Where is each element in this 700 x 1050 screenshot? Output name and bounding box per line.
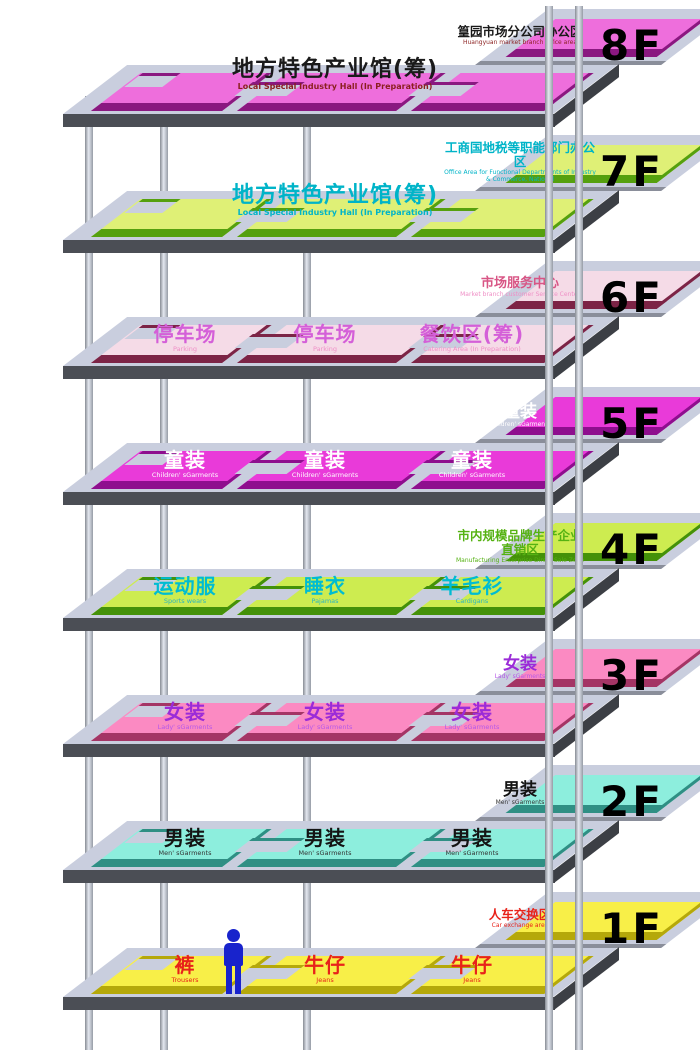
person-torso	[224, 943, 243, 966]
floor-number-5f: 5F	[600, 399, 696, 448]
zone-name-cn: 童装	[245, 449, 405, 471]
zone-name-en: Parking	[245, 345, 405, 353]
zone-name-cn: 童装	[392, 449, 552, 471]
floor-number-4f: 4F	[600, 525, 696, 574]
floor-number-3f: 3F	[600, 651, 696, 700]
zone-name-en: Men' sGarments	[245, 849, 405, 857]
zone-name-en: Children' sGarments	[245, 471, 405, 479]
floor-2f-slab-front	[63, 870, 555, 883]
zone-label: 童装 Children' sGarments	[105, 449, 265, 479]
zone-name-cn: 羊毛衫	[392, 575, 552, 597]
floor-number-7f: 7F	[600, 147, 696, 196]
zone-label: 女装 Lady' sGarments	[392, 701, 552, 731]
zone-name-cn: 停车场	[105, 323, 265, 345]
zone-label: 停车场 Parking	[245, 323, 405, 353]
floor-number-8f: 8F	[600, 21, 696, 70]
zone-name-en: Lady' sGarments	[245, 723, 405, 731]
zone-label: 停车场 Parking	[105, 323, 265, 353]
floor-7f-slab-front	[63, 240, 555, 253]
zone-name-en: Jeans	[392, 976, 552, 984]
zone-label: 睡衣 Pajamas	[245, 575, 405, 605]
zone-name-cn: 睡衣	[245, 575, 405, 597]
floor-4f: 运动服 Sports wears 睡衣 Pajamas 羊毛衫 Cardigan…	[0, 569, 700, 631]
zone-name-en: Local Special Industry Hall (In Preparat…	[160, 82, 510, 92]
floor-7f: 地方特色产业馆(筹) Local Special Industry Hall (…	[0, 191, 700, 253]
zone-name-cn: 女装	[392, 701, 552, 723]
floor-2f: 男装 Men' sGarments 男装 Men' sGarments 男装 M…	[0, 821, 700, 883]
zone-name-cn: 停车场	[245, 323, 405, 345]
zone-label: 餐饮区(筹) Catering Area (In Preparation)	[392, 323, 552, 353]
zone-name-en: Men' sGarments	[105, 849, 265, 857]
zone-name-cn: 地方特色产业馆(筹)	[160, 183, 510, 208]
zone-name-en: Men' sGarments	[392, 849, 552, 857]
zone-label: 童装 Children' sGarments	[245, 449, 405, 479]
zone-name-cn: 童装	[105, 449, 265, 471]
floor-1f: 裤 Trousers 牛仔 Jeans 牛仔 Jeans 人车交换区 Car e…	[0, 948, 700, 1010]
floor-1f-slab-front	[63, 997, 555, 1010]
person-icon	[218, 929, 248, 999]
support-column-front-right-2	[575, 6, 583, 1050]
zone-name-en: Pajamas	[245, 597, 405, 605]
floor-number-1f: 1F	[600, 904, 696, 953]
zone-label: 女装 Lady' sGarments	[245, 701, 405, 731]
support-column-front-right	[545, 6, 553, 1050]
zone-label-hall-8f: 地方特色产业馆(筹) Local Special Industry Hall (…	[160, 57, 510, 92]
zone-label: 羊毛衫 Cardigans	[392, 575, 552, 605]
zone-label: 运动服 Sports wears	[105, 575, 265, 605]
zone-name-cn: 女装	[105, 701, 265, 723]
zone-name-cn: 牛仔	[245, 954, 405, 976]
back-zone-en: Manufacturing Enterprise Direct Sale Zon…	[455, 557, 585, 564]
zone-name-en: Local Special Industry Hall (In Preparat…	[160, 208, 510, 218]
person-legs	[218, 966, 248, 994]
floor-3f-slab-front	[63, 744, 555, 757]
floor-8f: 地方特色产业馆(筹) Local Special Industry Hall (…	[0, 65, 700, 127]
back-zone-cn: 市内规模品牌生产企业直销区	[455, 529, 585, 557]
zone-name-cn: 男装	[392, 827, 552, 849]
zone-name-cn: 女装	[245, 701, 405, 723]
zone-name-en: Parking	[105, 345, 265, 353]
floor-4f-slab-front	[63, 618, 555, 631]
zone-label: 女装 Lady' sGarments	[105, 701, 265, 731]
zone-name-en: Lady' sGarments	[392, 723, 552, 731]
zone-name-cn: 男装	[105, 827, 265, 849]
zone-name-en: Lady' sGarments	[105, 723, 265, 731]
zone-name-en: Sports wears	[105, 597, 265, 605]
back-zone-label-4f: 市内规模品牌生产企业直销区 Manufacturing Enterprise D…	[455, 529, 585, 564]
floor-6f-slab-front	[63, 366, 555, 379]
zone-label: 男装 Men' sGarments	[105, 827, 265, 857]
floor-8f-slab-front	[63, 114, 555, 127]
zone-name-cn: 运动服	[105, 575, 265, 597]
zone-name-cn: 牛仔	[392, 954, 552, 976]
zone-label: 牛仔 Jeans	[245, 954, 405, 984]
zone-name-cn: 男装	[245, 827, 405, 849]
zone-name-cn: 地方特色产业馆(筹)	[160, 57, 510, 82]
zone-label: 童装 Children' sGarments	[392, 449, 552, 479]
zone-label: 男装 Men' sGarments	[245, 827, 405, 857]
zone-name-en: Children' sGarments	[105, 471, 265, 479]
floor-5f-slab-front	[63, 492, 555, 505]
zone-label: 男装 Men' sGarments	[392, 827, 552, 857]
floor-5f: 童装 Children' sGarments 童装 Children' sGar…	[0, 443, 700, 505]
floor-6f: 停车场 Parking 停车场 Parking 餐饮区(筹) Catering …	[0, 317, 700, 379]
zone-label-hall-7f: 地方特色产业馆(筹) Local Special Industry Hall (…	[160, 183, 510, 218]
floor-number-2f: 2F	[600, 777, 696, 826]
zone-name-en: Jeans	[245, 976, 405, 984]
zone-name-en: Cardigans	[392, 597, 552, 605]
person-head	[227, 929, 240, 942]
floor-3f: 女装 Lady' sGarments 女装 Lady' sGarments 女装…	[0, 695, 700, 757]
zone-name-en: Children' sGarments	[392, 471, 552, 479]
floor-number-6f: 6F	[600, 273, 696, 322]
zone-label: 牛仔 Jeans	[392, 954, 552, 984]
zone-name-cn: 餐饮区(筹)	[392, 323, 552, 345]
zone-name-en: Catering Area (In Preparation)	[392, 345, 552, 353]
